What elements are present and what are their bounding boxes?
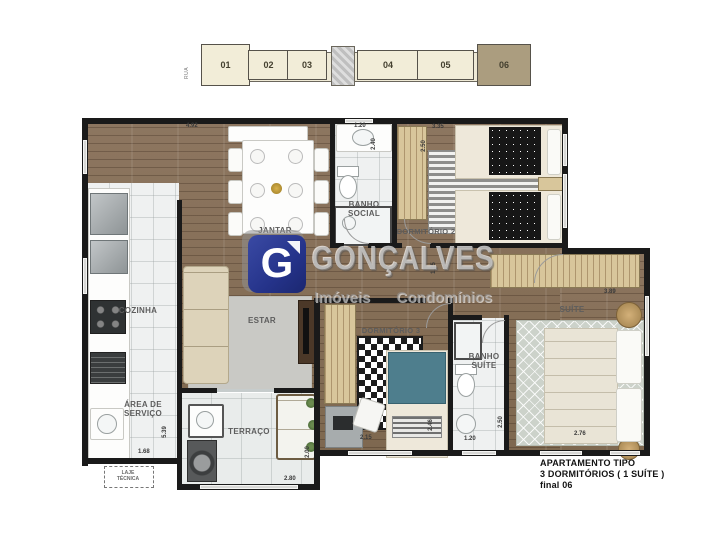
street-label: RUA [184, 67, 190, 79]
dimension: 1.68 [138, 449, 150, 455]
bed-blanket [388, 352, 446, 404]
dimension: 3.35 [432, 124, 444, 130]
unit-number: 04 [383, 60, 393, 70]
wall [330, 243, 344, 248]
bed-blanket [489, 192, 541, 240]
stair-core [331, 46, 355, 86]
wall [274, 388, 320, 393]
dimension: 1.20 [354, 123, 366, 129]
title-line-1: APARTAMENTO TIPO [540, 458, 665, 469]
room-label-dormitorio-3: DORMITÓRIO 3 [354, 326, 428, 335]
wall [82, 458, 182, 464]
nightstand [538, 177, 564, 191]
window [563, 134, 567, 166]
sink-basin [456, 414, 476, 434]
wall [562, 248, 650, 254]
room-label-dormitorio-2: DORMITÓRIO 2 [390, 227, 462, 236]
title-line-3: final 06 [540, 480, 665, 491]
dining-chair [314, 212, 329, 236]
wall [82, 118, 568, 124]
wardrobe [490, 254, 640, 288]
wall [314, 298, 320, 490]
window [200, 485, 298, 489]
wall [448, 315, 482, 320]
dimension: 2.50 [498, 416, 504, 428]
oven-grill [90, 352, 126, 384]
dining-chair [228, 180, 243, 204]
wardrobe [324, 304, 356, 404]
room-label-cozinha: COZINHA [112, 306, 164, 315]
unit-number: 03 [302, 60, 312, 70]
wall [177, 388, 217, 393]
pillow [547, 129, 561, 175]
wall [330, 118, 335, 248]
unit-02: 02 [248, 50, 289, 80]
sofa [183, 266, 229, 384]
window [462, 451, 496, 455]
window [645, 296, 649, 356]
kitchen-sink [90, 240, 128, 274]
dimension: 1.20 [464, 436, 476, 442]
unit-04: 04 [357, 50, 419, 80]
place-setting [288, 183, 303, 198]
round-side-table [616, 302, 642, 328]
window [348, 451, 412, 455]
window [610, 451, 640, 455]
dining-chair [314, 148, 329, 172]
dimension: 2.40 [371, 138, 377, 150]
title-line-2: 3 DORMITÓRIOS ( 1 SUÍTE ) [540, 469, 665, 480]
dining-chair [314, 180, 329, 204]
window [83, 140, 87, 174]
dimension: 2.15 [360, 435, 372, 441]
dimension: 2.50 [421, 140, 427, 152]
double-bed [544, 328, 618, 444]
window [563, 174, 567, 228]
room-label-area-servico: ÁREA DE SERVIÇO [118, 400, 168, 418]
bed-blanket [489, 127, 541, 175]
fridge [90, 193, 128, 235]
window [83, 258, 87, 294]
toilet-bowl [457, 373, 475, 397]
room-label-terraco: TERRAÇO [220, 427, 278, 436]
place-setting [250, 183, 265, 198]
dimension: 4.92 [186, 123, 198, 129]
place-setting [288, 149, 303, 164]
building-overview: RUA 01 02 03 04 05 06 [195, 42, 540, 90]
unit-number: 02 [263, 60, 273, 70]
tub-basin [196, 411, 214, 429]
room-label-suite: SUÍTE [550, 305, 594, 314]
wall [177, 388, 182, 490]
place-setting [250, 149, 265, 164]
room-label-jantar: JANTAR [240, 226, 310, 235]
unit-01: 01 [201, 44, 250, 86]
washing-machine [187, 440, 217, 482]
wall [368, 243, 402, 248]
centerpiece [271, 183, 282, 194]
tub-basin [97, 414, 117, 434]
sliding-glass-door [217, 389, 274, 392]
wall [177, 200, 182, 390]
wall [430, 243, 567, 248]
pillow [392, 416, 442, 438]
floorplan-image: RUA 01 02 03 04 05 06 [0, 0, 720, 540]
dimension: 2.80 [284, 476, 296, 482]
wall [314, 298, 426, 303]
room-label-banho-suite: BANHO SUÍTE [462, 352, 506, 370]
dimension: 1.15 [431, 262, 437, 274]
laptop [333, 416, 353, 430]
unit-number: 06 [499, 60, 509, 70]
title-block: APARTAMENTO TIPO 3 DORMITÓRIOS ( 1 SUÍTE… [540, 458, 665, 491]
unit-05: 05 [417, 50, 474, 80]
window [540, 451, 582, 455]
dining-chair [228, 148, 243, 172]
room-label-laje-tecnica: LAJE TÉCNICA [111, 470, 145, 482]
room-label-estar: ESTAR [238, 316, 286, 325]
pillow [616, 330, 642, 384]
unit-number: 01 [220, 60, 230, 70]
room-label-banho-social: BANHO SOCIAL [338, 200, 390, 218]
unit-03: 03 [287, 50, 327, 80]
dimension: 2.46 [428, 419, 434, 431]
dimension: 2.00 [305, 446, 311, 458]
dimension: 3.89 [604, 289, 616, 295]
dimension: 2.76 [574, 431, 586, 437]
pillow [616, 388, 642, 442]
unit-number: 05 [440, 60, 450, 70]
toilet-bowl [339, 175, 357, 199]
dimension: 5.39 [162, 426, 168, 438]
tv [303, 308, 309, 354]
pillow [547, 194, 561, 240]
unit-06-highlighted: 06 [477, 44, 531, 86]
